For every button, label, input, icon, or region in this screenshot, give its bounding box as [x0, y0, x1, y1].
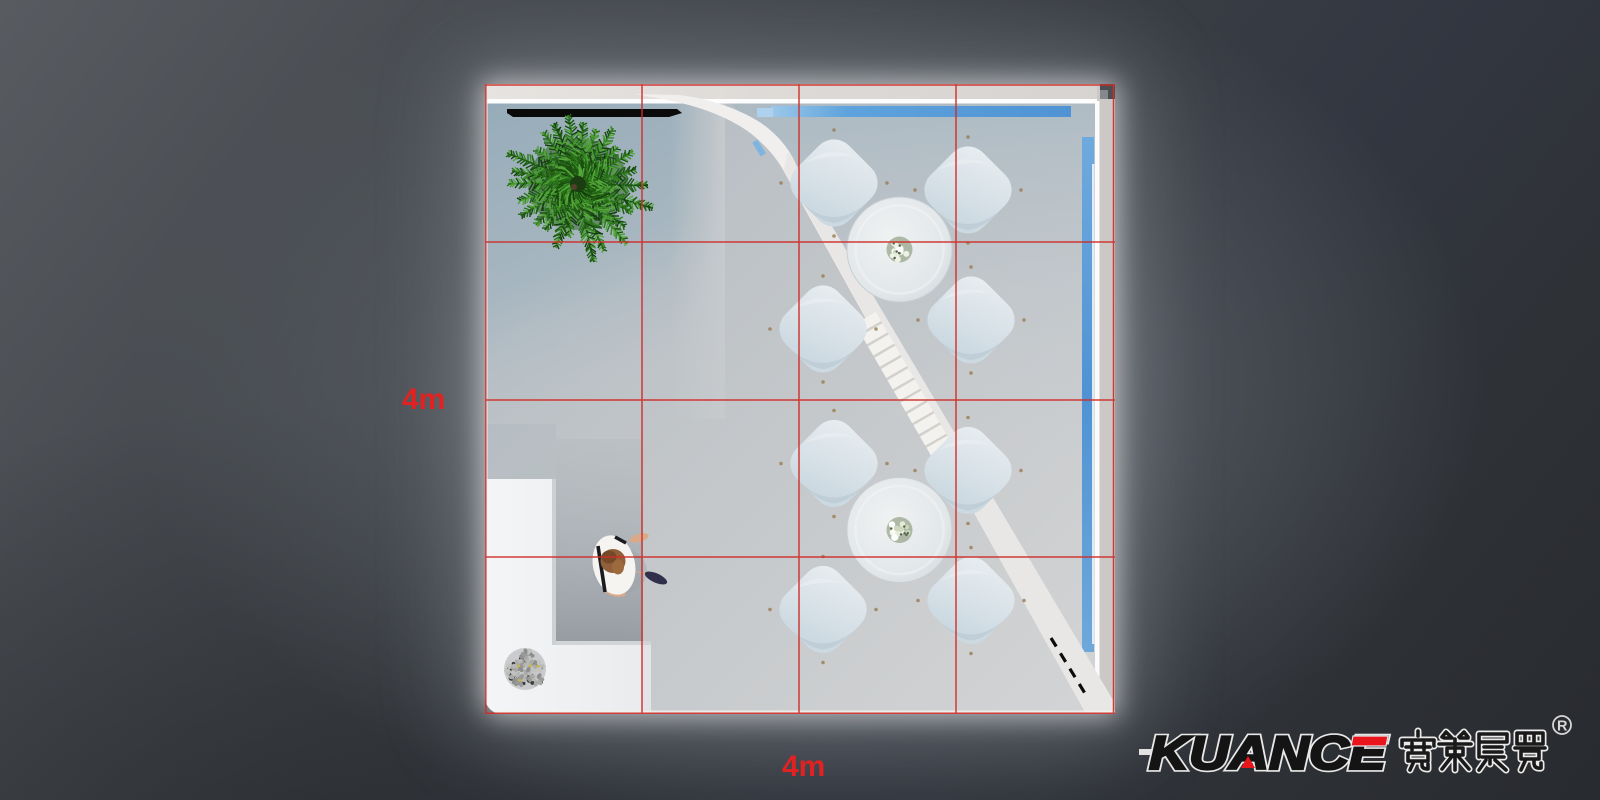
svg-text:KUANCE: KUANCE [1149, 726, 1388, 779]
svg-text:R: R [1557, 719, 1568, 735]
